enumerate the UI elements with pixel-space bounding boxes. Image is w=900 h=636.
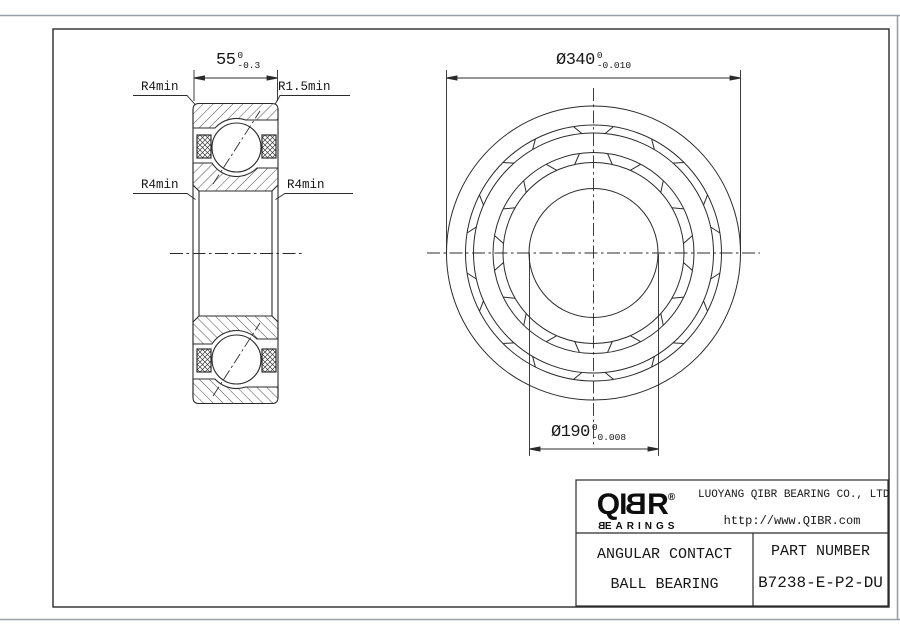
cage-pocket-edge bbox=[605, 372, 614, 379]
cage-pocket-edge bbox=[575, 342, 580, 353]
part-number-label: PART NUMBER bbox=[753, 543, 888, 560]
cage-pocket-edge bbox=[605, 127, 614, 134]
cage-pocket-edge bbox=[480, 301, 484, 311]
product-type-line1: ANGULAR CONTACT bbox=[576, 546, 753, 563]
label-fillet-mid-right: R4min bbox=[287, 178, 325, 192]
cage-pocket-edge bbox=[546, 336, 556, 342]
dim-od-number: 340 bbox=[566, 51, 595, 70]
cage-pocket-edge bbox=[704, 301, 708, 311]
dim-width-tolerance: 0 -0.3 bbox=[237, 51, 260, 71]
label-fillet-mid-left: R4min bbox=[141, 178, 179, 192]
page-edge bbox=[0, 16, 900, 620]
diameter-symbol: Ø bbox=[551, 423, 561, 442]
dim-width-lines bbox=[194, 70, 278, 101]
cage-pocket-edge bbox=[661, 314, 664, 326]
dim-bore-value: Ø190 bbox=[551, 423, 590, 443]
cage-pocket-edge bbox=[503, 208, 515, 209]
cage-pocket-edge bbox=[608, 154, 613, 165]
cage-pocket-edge bbox=[495, 263, 504, 271]
cage-pocket-edge bbox=[672, 208, 684, 209]
cage-pocket-edge bbox=[524, 314, 527, 326]
dim-width-text: 55 0 -0.3 bbox=[216, 51, 260, 71]
cage-pocket-edge bbox=[661, 181, 664, 193]
cage-pocket-edge bbox=[673, 343, 684, 344]
part-number-value: B7238-E-P2-DU bbox=[753, 574, 888, 592]
logo-letter-b-mirrored: B bbox=[626, 490, 647, 520]
drawing-linework bbox=[0, 0, 900, 636]
dim-width-value: 55 bbox=[216, 51, 235, 71]
diameter-symbol: Ø bbox=[556, 51, 566, 70]
company-website: http://www.QIBR.com bbox=[698, 514, 886, 528]
registered-trademark-symbol: ® bbox=[668, 492, 675, 503]
dim-od-value: Ø340 bbox=[556, 51, 595, 71]
drawing-page: 55 0 -0.3 Ø340 0 -0.010 Ø190 0 -0.008 R4… bbox=[0, 0, 900, 636]
dim-bore-tol-lower: -0.008 bbox=[592, 433, 626, 443]
cage-section-left-hatch bbox=[197, 135, 211, 158]
cage-pocket-edge bbox=[673, 163, 684, 164]
product-type-line2: BALL BEARING bbox=[576, 576, 753, 593]
section-view bbox=[170, 104, 302, 404]
cage-pocket-edge bbox=[630, 336, 640, 342]
dim-od-tolerance: 0 -0.010 bbox=[597, 51, 631, 71]
dim-bore-text: Ø190 0 -0.008 bbox=[551, 423, 626, 443]
company-name: LUOYANG QIBR BEARING CO., LTD bbox=[698, 489, 886, 501]
logo-sub-rest: EARINGS bbox=[605, 521, 679, 532]
dim-bore-tolerance: 0 -0.008 bbox=[592, 423, 626, 443]
cage-pocket-edge bbox=[672, 297, 684, 298]
logo-letters-qi: QI bbox=[597, 488, 627, 521]
cage-pocket-edge bbox=[495, 236, 504, 244]
cage-pocket-edge bbox=[546, 164, 556, 170]
front-centerlines bbox=[427, 88, 760, 446]
brand-logo: QIBR® BEARINGS bbox=[583, 483, 689, 532]
section-top-half bbox=[193, 104, 278, 192]
dim-width-tol-lower: -0.3 bbox=[237, 61, 260, 71]
dim-od-tol-lower: -0.010 bbox=[597, 61, 631, 71]
dim-od-text: Ø340 0 -0.010 bbox=[556, 51, 631, 71]
cage-pocket-edge bbox=[503, 163, 514, 164]
cage-pocket-edge bbox=[503, 343, 514, 344]
cage-pocket-edge bbox=[684, 263, 693, 271]
label-fillet-top-right: R1.5min bbox=[278, 80, 331, 94]
section-bottom-half bbox=[193, 316, 278, 404]
cage-pocket-edge bbox=[704, 195, 708, 205]
cage-pocket-edge bbox=[574, 372, 583, 379]
logo-letter-r: R bbox=[647, 488, 668, 521]
front-view bbox=[427, 88, 760, 446]
cage-pocket-edge bbox=[684, 236, 693, 244]
cage-pocket-edge bbox=[574, 127, 583, 134]
cage-pocket-edge bbox=[575, 154, 580, 165]
dim-bore-number: 190 bbox=[561, 423, 590, 442]
brand-logo-subtext: BEARINGS bbox=[583, 521, 689, 532]
cage-pocket-edge bbox=[608, 342, 613, 353]
label-fillet-top-left: R4min bbox=[141, 80, 179, 94]
cage-section-right-hatch bbox=[262, 135, 276, 158]
cage-pocket-edge bbox=[480, 195, 484, 205]
cage-pocket-edge bbox=[630, 164, 640, 170]
brand-logo-text: QIBR® bbox=[583, 483, 689, 520]
cage-pocket-edge bbox=[503, 297, 515, 298]
cage-pocket-edge bbox=[524, 181, 527, 193]
logo-sub-b-mirrored: B bbox=[594, 521, 605, 532]
